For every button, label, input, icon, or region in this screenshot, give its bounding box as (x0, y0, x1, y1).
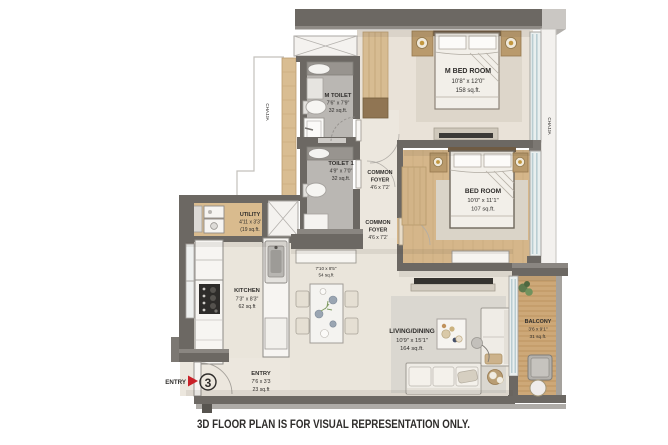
svg-text:COMMON: COMMON (367, 170, 392, 176)
svg-text:KITCHEN: KITCHEN (234, 288, 260, 294)
svg-text:32 sq.ft.: 32 sq.ft. (329, 108, 347, 114)
svg-text:4'11 x 3'3': 4'11 x 3'3' (239, 220, 261, 226)
svg-text:COMMON: COMMON (365, 220, 390, 226)
svg-text:FOYER: FOYER (371, 178, 390, 184)
svg-text:32 sq.ft.: 32 sq.ft. (332, 176, 350, 182)
svg-text:CHAJJA: CHAJJA (547, 117, 552, 135)
svg-text:7'6 x 3'3: 7'6 x 3'3 (252, 379, 271, 385)
svg-text:62 sq.ft: 62 sq.ft (238, 304, 256, 310)
svg-text:3'6 x 9'1": 3'6 x 9'1" (528, 327, 548, 333)
svg-text:TOILET 1: TOILET 1 (328, 161, 354, 167)
svg-text:7'10 x 8'5": 7'10 x 8'5" (315, 266, 336, 271)
svg-text:M BED ROOM: M BED ROOM (445, 68, 491, 75)
svg-text:3: 3 (205, 376, 212, 390)
svg-text:UTILITY: UTILITY (240, 212, 261, 218)
svg-text:7'6" x 7'9": 7'6" x 7'9" (327, 101, 350, 107)
svg-text:CHAJJA: CHAJJA (265, 103, 270, 121)
svg-text:ENTRY: ENTRY (165, 379, 187, 386)
svg-text:BED ROOM: BED ROOM (465, 188, 502, 195)
svg-text:BALCONY: BALCONY (525, 319, 552, 325)
svg-text:4'6 x 7'2': 4'6 x 7'2' (368, 235, 387, 241)
svg-text:10'0" x 11'1": 10'0" x 11'1" (467, 198, 498, 204)
svg-text:31 sq.ft.: 31 sq.ft. (529, 334, 546, 340)
svg-text:3D FLOOR PLAN IS FOR VISUAL RE: 3D FLOOR PLAN IS FOR VISUAL REPRESENTATI… (197, 417, 470, 431)
svg-text:ENTRY: ENTRY (251, 371, 271, 377)
svg-text:M TOILET: M TOILET (325, 93, 352, 99)
svg-text:158 sq.ft.: 158 sq.ft. (456, 88, 481, 94)
svg-text:7'3" x 8'3": 7'3" x 8'3" (236, 297, 259, 303)
svg-text:4'9" x 7'0": 4'9" x 7'0" (330, 169, 353, 175)
svg-text:107 sq.ft.: 107 sq.ft. (471, 207, 495, 213)
svg-text:10'8" x 12'0": 10'8" x 12'0" (452, 79, 485, 85)
svg-text:FOYER: FOYER (369, 228, 388, 234)
svg-text:54 sq.ft: 54 sq.ft (318, 273, 334, 278)
svg-text:4'6 x 7'2': 4'6 x 7'2' (370, 185, 389, 191)
svg-text:10'9" x 15'1": 10'9" x 15'1" (396, 338, 428, 344)
svg-text:(19 sq.ft.: (19 sq.ft. (240, 227, 259, 233)
svg-text:164 sq.ft.: 164 sq.ft. (400, 346, 424, 352)
svg-text:LIVING/DINING: LIVING/DINING (389, 328, 434, 335)
